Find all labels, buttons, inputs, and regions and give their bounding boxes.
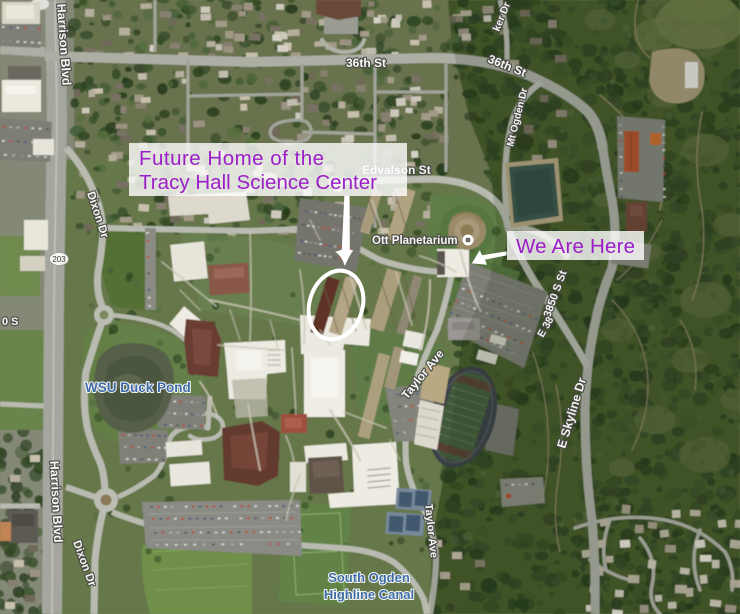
svg-text:South Ogden: South Ogden — [328, 570, 410, 585]
svg-text:Highline Canal: Highline Canal — [324, 587, 414, 602]
svg-text:203: 203 — [52, 255, 66, 264]
svg-text:0 S: 0 S — [2, 316, 19, 328]
svg-text:Ott Planetarium: Ott Planetarium — [372, 235, 458, 247]
svg-text:36th St: 36th St — [346, 56, 386, 70]
svg-text:Future Home of the: Future Home of the — [139, 147, 324, 170]
svg-text:WSU Duck Pond: WSU Duck Pond — [85, 380, 191, 395]
svg-text:We Are Here: We Are Here — [516, 235, 635, 258]
svg-text:Tracy Hall Science Center: Tracy Hall Science Center — [139, 171, 377, 194]
